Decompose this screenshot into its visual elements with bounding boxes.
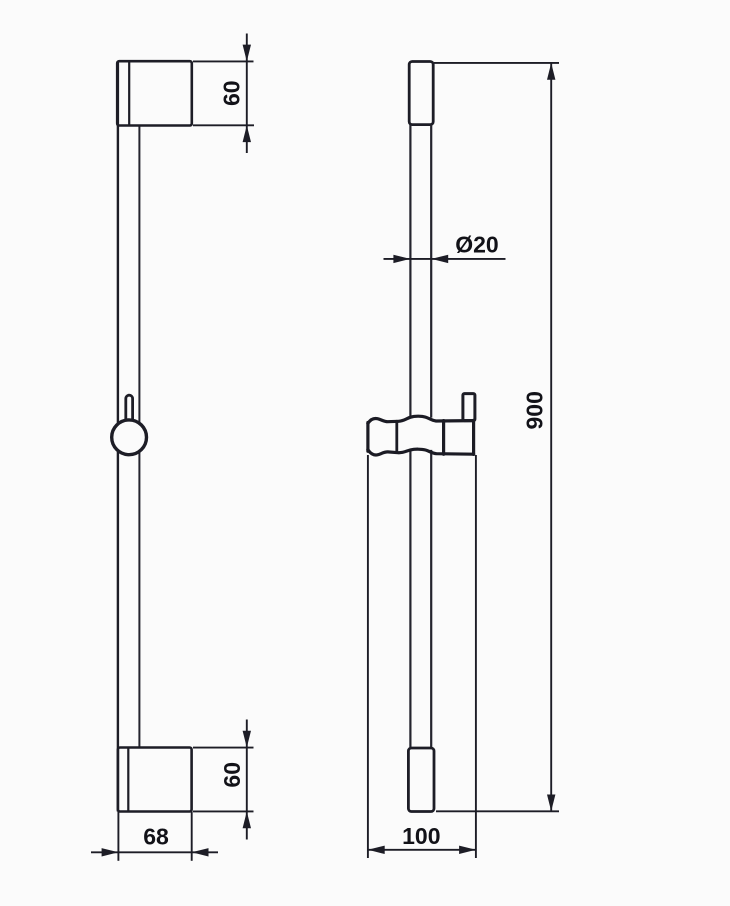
svg-text:Ø20: Ø20 [455,232,498,258]
svg-text:900: 900 [522,391,548,429]
svg-text:60: 60 [219,80,245,106]
svg-text:60: 60 [219,762,245,788]
svg-text:100: 100 [402,823,440,849]
svg-text:68: 68 [143,824,169,850]
